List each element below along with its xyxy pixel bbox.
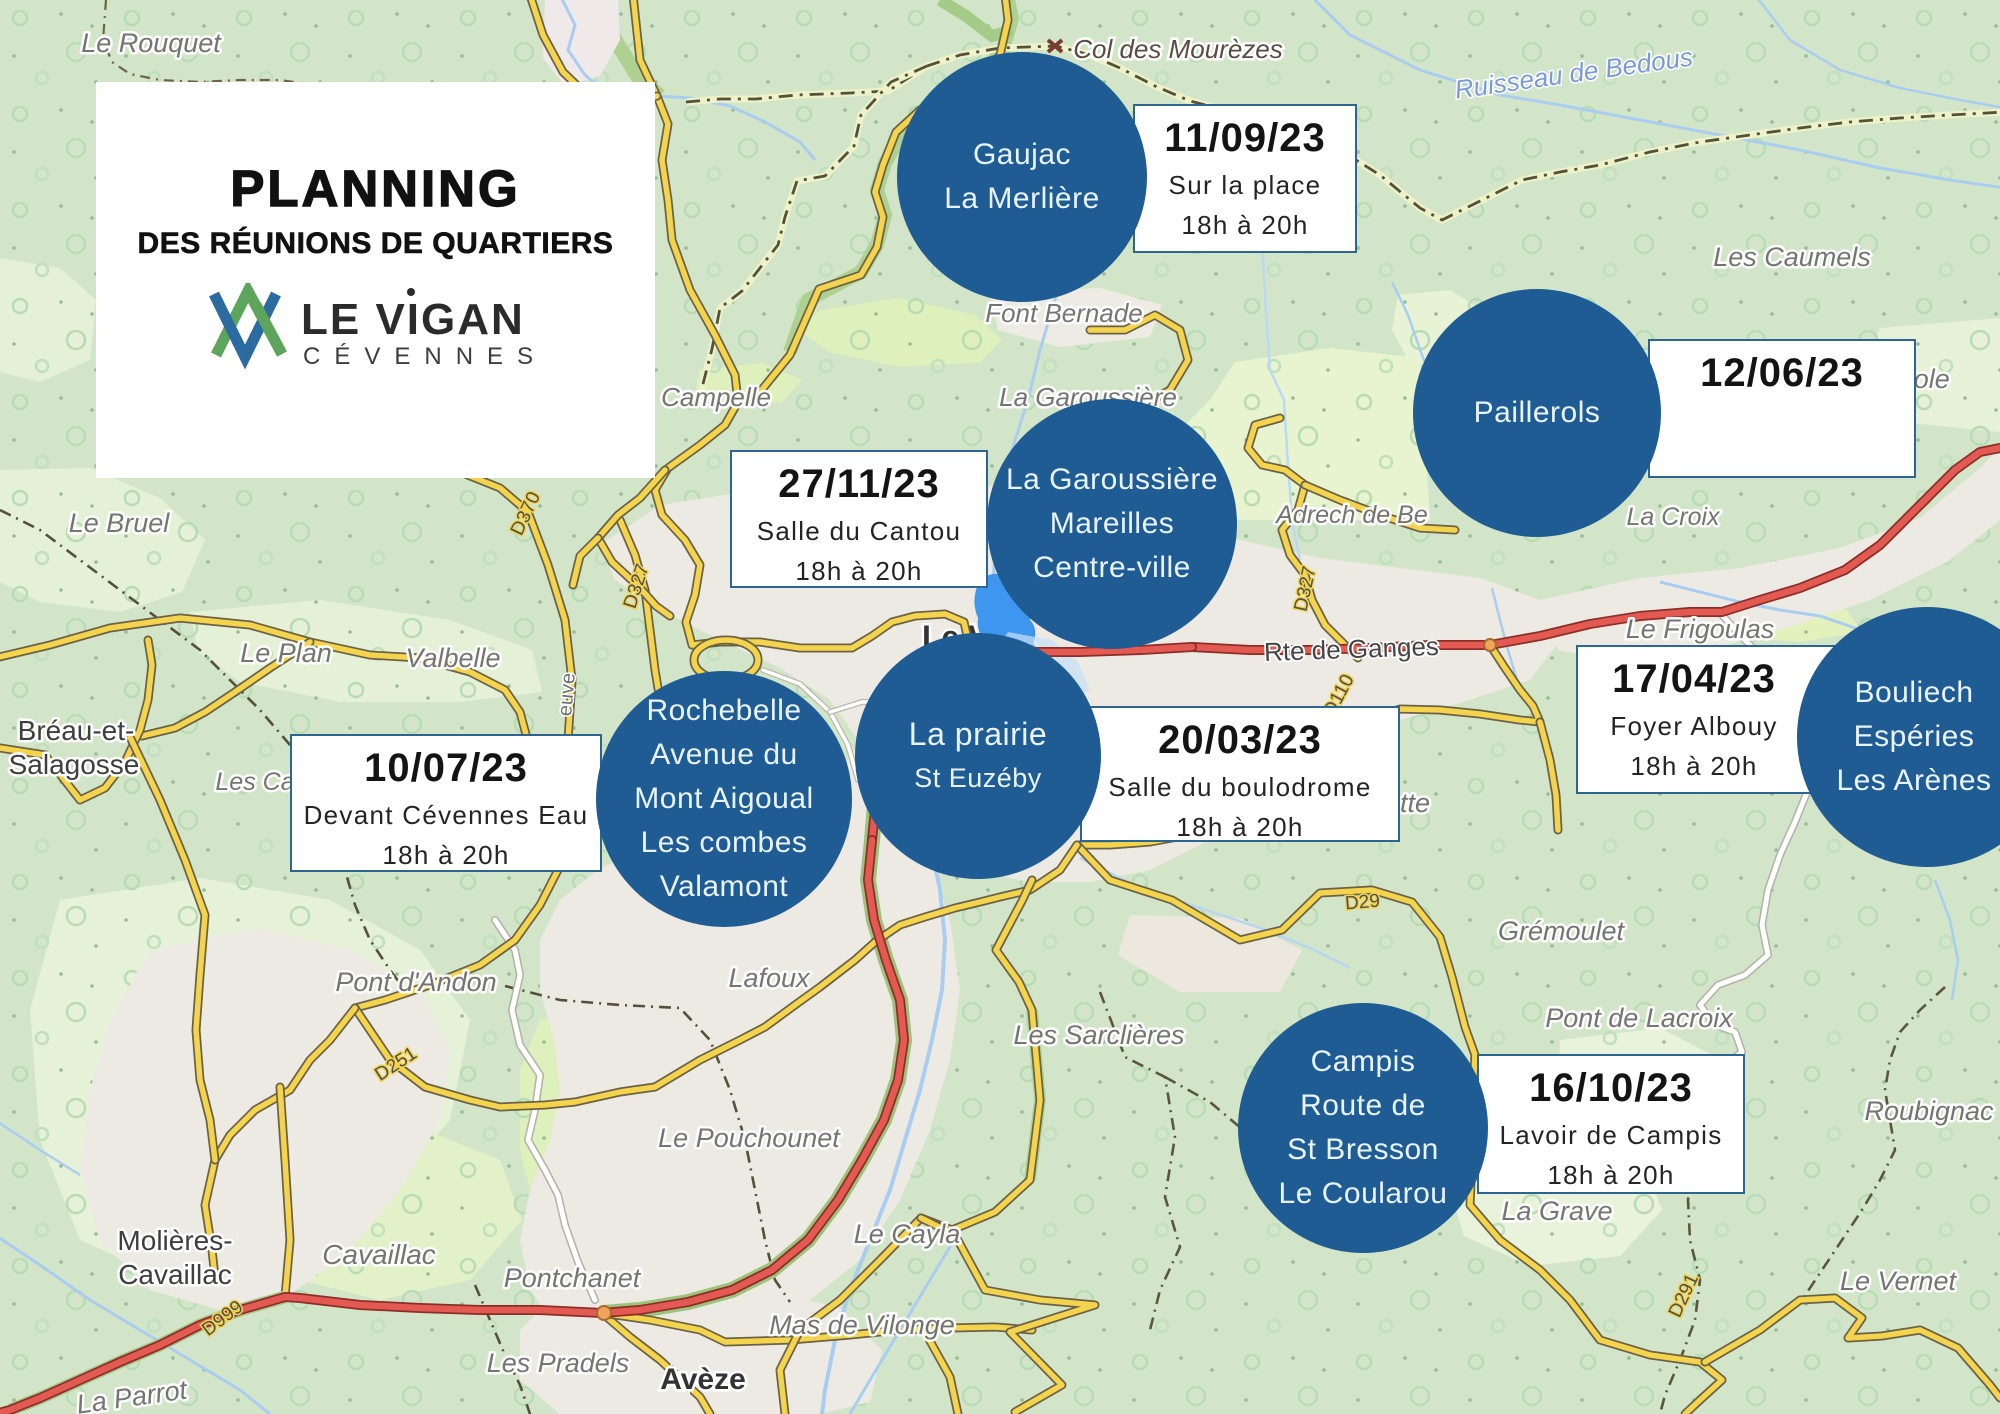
svg-text:Pontchanet: Pontchanet [504, 1263, 642, 1293]
svg-text:Les Sarclières: Les Sarclières [1013, 1020, 1184, 1050]
svg-text:Col des Mourèzes: Col des Mourèzes [1073, 34, 1283, 64]
svg-text:Valbelle: Valbelle [405, 643, 500, 673]
svg-text:Rte de Ganges: Rte de Ganges [1264, 631, 1440, 667]
svg-text:La Grave: La Grave [1501, 1196, 1612, 1226]
svg-text:euve: euve [554, 672, 580, 717]
svg-text:Les Pradels: Les Pradels [487, 1348, 630, 1378]
svg-text:Bréau-et-: Bréau-et- [18, 715, 135, 746]
svg-text:Roubignac: Roubignac [1864, 1096, 1994, 1126]
svg-text:Le Cayla: Le Cayla [854, 1219, 961, 1249]
svg-text:Campelle: Campelle [661, 382, 771, 412]
svg-text:Pont de Lacroix: Pont de Lacroix [1545, 1003, 1734, 1033]
svg-text:Lafoux: Lafoux [728, 963, 811, 993]
svg-text:Les Ca: Les Ca [215, 768, 294, 796]
svg-text:Molières-: Molières- [117, 1225, 232, 1256]
svg-text:Grémoulet: Grémoulet [1498, 916, 1626, 946]
svg-text:La Croix: La Croix [1626, 503, 1721, 531]
svg-text:Le Vernet: Le Vernet [1840, 1266, 1958, 1296]
svg-text:D29: D29 [1344, 891, 1381, 915]
svg-text:Adrech de Be: Adrech de Be [1274, 501, 1428, 529]
svg-text:Cavaillac: Cavaillac [322, 1239, 436, 1270]
svg-text:CÉVENNES: CÉVENNES [303, 343, 547, 370]
svg-text:Le Frigoulas: Le Frigoulas [1626, 614, 1775, 644]
svg-text:Cavaillac: Cavaillac [118, 1259, 232, 1290]
svg-text:Le Pouchounet: Le Pouchounet [658, 1123, 841, 1153]
svg-text:LE VIGAN: LE VIGAN [301, 295, 525, 344]
svg-text:Salagosse: Salagosse [9, 749, 140, 780]
svg-text:Le Bruel: Le Bruel [69, 508, 171, 538]
svg-text:Le Plan: Le Plan [240, 638, 332, 668]
svg-text:Le Rouquet: Le Rouquet [81, 28, 222, 58]
svg-text:Avèze: Avèze [660, 1363, 746, 1396]
svg-text:Font Bernade: Font Bernade [985, 298, 1143, 328]
svg-text:Pont d'Andon: Pont d'Andon [335, 967, 496, 997]
svg-text:Mas de Vilonge: Mas de Vilonge [769, 1310, 955, 1340]
svg-text:Les Caumels: Les Caumels [1713, 242, 1871, 272]
